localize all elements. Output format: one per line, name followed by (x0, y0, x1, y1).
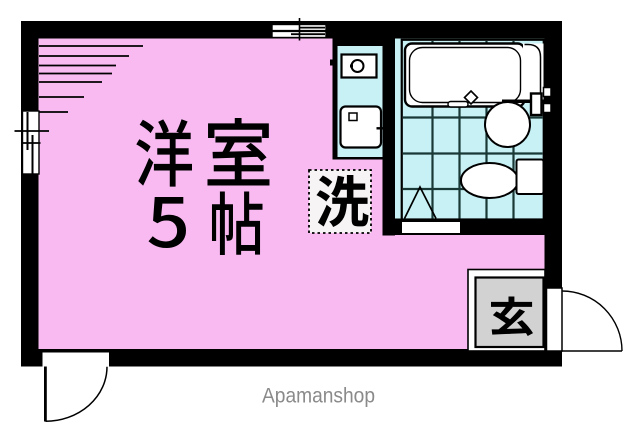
svg-text:Apamanshop: Apamanshop (262, 384, 375, 408)
